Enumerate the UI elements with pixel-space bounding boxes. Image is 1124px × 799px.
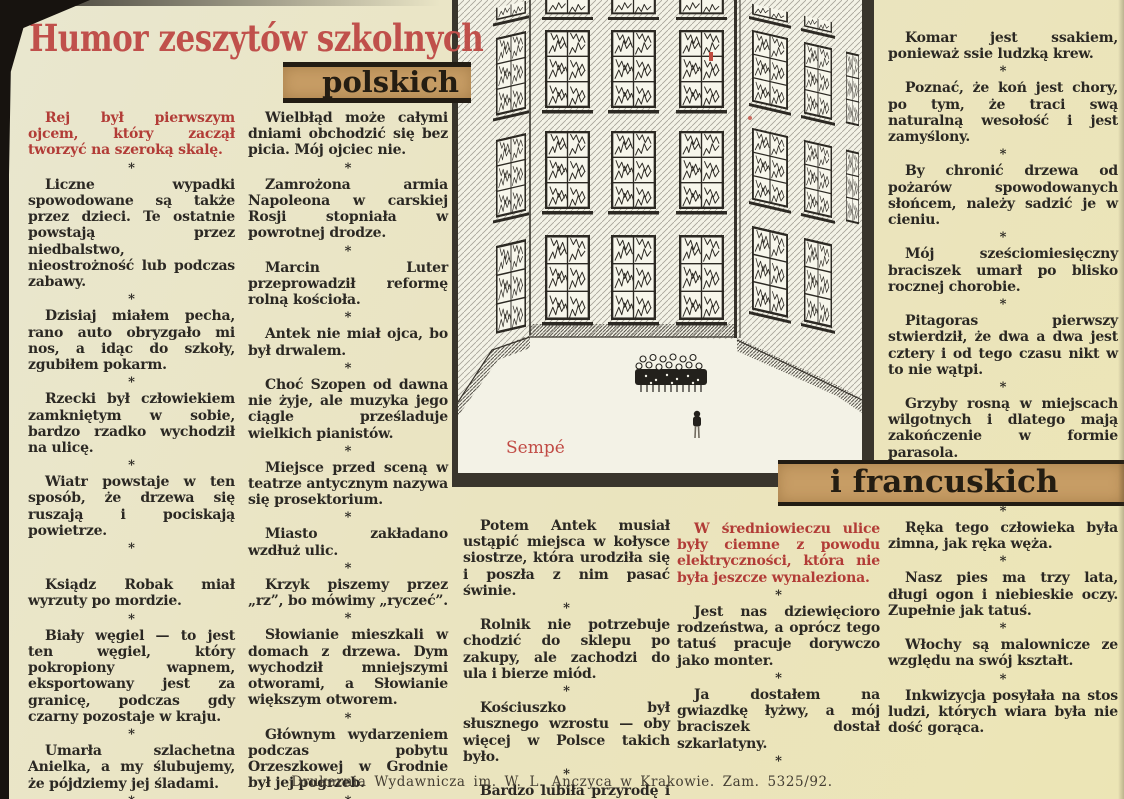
scan-edge-right bbox=[1118, 0, 1124, 799]
quote: Choć Szopen od dawna nie żyje, ale muzyk… bbox=[248, 377, 448, 442]
asterisk-separator: * bbox=[28, 795, 235, 799]
column-polish-right: Komar jest ssakiem, ponieważ ssie ludzką… bbox=[888, 30, 1118, 479]
asterisk-separator: * bbox=[888, 65, 1118, 78]
quote: Biały węgiel — to jest ten węgiel, który… bbox=[28, 628, 235, 725]
asterisk-separator: * bbox=[248, 445, 448, 458]
quote: Wielbłąd może całymi dniami obchodzić si… bbox=[248, 110, 448, 159]
asterisk-separator: * bbox=[28, 728, 235, 741]
asterisk-separator: * bbox=[888, 231, 1118, 244]
asterisk-separator: * bbox=[28, 542, 235, 555]
asterisk-separator: * bbox=[888, 673, 1118, 686]
section-banner-french: i francuskich bbox=[778, 460, 1124, 506]
quote: Marcin Luter przeprowadził reformę rolną… bbox=[248, 260, 448, 309]
asterisk-separator: * bbox=[888, 298, 1118, 311]
quote: Ręka tego człowieka była zimna, jak ręka… bbox=[888, 520, 1118, 552]
asterisk-separator: * bbox=[248, 362, 448, 375]
quote: Krzyk piszemy przez „rz”, bo mówimy „ryc… bbox=[248, 577, 448, 609]
asterisk-separator: * bbox=[677, 589, 880, 602]
quote: Antek nie miał ojca, bo był drwalem. bbox=[248, 326, 448, 358]
left-wall-windows bbox=[493, 0, 529, 333]
quote: Komar jest ssakiem, ponieważ ssie ludzką… bbox=[888, 30, 1118, 62]
scan-edge-top bbox=[0, 0, 440, 6]
asterisk-separator: * bbox=[248, 562, 448, 575]
asterisk-separator: * bbox=[888, 381, 1118, 394]
asterisk-separator: * bbox=[248, 612, 448, 625]
banner-polish-label: polskich bbox=[283, 67, 459, 97]
column-french-mid: W średniowieczu ulice były ciemne z powo… bbox=[677, 521, 880, 770]
quote: Miasto zakładano wzdłuż ulic. bbox=[248, 526, 448, 558]
asterisk-separator: * bbox=[248, 311, 448, 324]
asterisk-separator: * bbox=[463, 602, 670, 615]
quote: Grzyby rosną w miejscach wilgotnych i dl… bbox=[888, 396, 1118, 461]
quote: W średniowieczu ulice były ciemne z powo… bbox=[677, 521, 880, 586]
asterisk-separator: * bbox=[248, 712, 448, 725]
quote: Pitagoras pierwszy stwierdził, że dwa a … bbox=[888, 313, 1118, 378]
quote: Słowianie mieszkali w domach z drzewa. D… bbox=[248, 627, 448, 708]
column-french-right: *Ręka tego człowieka była zimna, jak ręk… bbox=[888, 502, 1118, 736]
quote: Wiatr powstaje w ten sposób, że drzewa s… bbox=[28, 474, 235, 539]
quote: By chronić drzewa od pożarów spowodowany… bbox=[888, 163, 1118, 228]
printer-imprint: Drukarnia Wydawnicza im. W. L. Anczyca w… bbox=[0, 774, 1124, 790]
quote: Rolnik nie potrzebuje chodzić do sklepu … bbox=[463, 617, 670, 682]
front-wall-windows bbox=[542, 0, 727, 325]
quote: Jest nas dziewięcioro rodzeństwa, a opró… bbox=[677, 604, 880, 669]
asterisk-separator: * bbox=[888, 555, 1118, 568]
asterisk-separator: * bbox=[888, 148, 1118, 161]
asterisk-separator: * bbox=[28, 293, 235, 306]
quote: Rzecki był człowiekiem zamkniętym w sobi… bbox=[28, 391, 235, 456]
artist-signature: Sempé bbox=[506, 438, 565, 458]
section-banner-polish: polskich bbox=[283, 62, 471, 103]
asterisk-separator: * bbox=[248, 162, 448, 175]
asterisk-separator: * bbox=[888, 505, 1118, 518]
quote: Liczne wypadki spowodowane są także prze… bbox=[28, 177, 235, 291]
asterisk-separator: * bbox=[248, 511, 448, 524]
asterisk-separator: * bbox=[888, 622, 1118, 635]
quote: Dzisiaj miałem pecha, rano auto obryzgał… bbox=[28, 308, 235, 373]
page-title: Humor zeszytów szkolnych bbox=[29, 17, 483, 61]
asterisk-separator: * bbox=[28, 162, 235, 175]
column-polish-left: Rej był pierwszym ojcem, który zaczął tw… bbox=[28, 110, 235, 799]
courtyard-illustration: Sempé bbox=[452, 0, 874, 487]
column-polish-mid: Wielbłąd może całymi dniami obchodzić si… bbox=[248, 110, 448, 799]
quote: Potem Antek musiał ustąpić miejsca w koł… bbox=[463, 518, 670, 599]
column-bottom-left: Potem Antek musiał ustąpić miejsca w koł… bbox=[463, 518, 670, 799]
banner-french-label: i francuskich bbox=[830, 464, 1124, 500]
magazine-page: Sempé Humor zeszytów szkolnych polskich … bbox=[0, 0, 1124, 799]
red-figure-in-window bbox=[709, 52, 713, 61]
quote: Inkwizycja posyłała na stos ludzi, który… bbox=[888, 688, 1118, 737]
quote: Włochy są malownicze ze względu na swój … bbox=[888, 637, 1118, 669]
asterisk-separator: * bbox=[248, 245, 448, 258]
asterisk-separator: * bbox=[677, 672, 880, 685]
quote: Poznać, że koń jest chory, po tym, że tr… bbox=[888, 80, 1118, 145]
asterisk-separator: * bbox=[463, 685, 670, 698]
quote: Kościuszko był słusznego wzrostu — oby w… bbox=[463, 700, 670, 765]
asterisk-separator: * bbox=[677, 755, 880, 768]
quote: Mój sześciomiesięczny braciszek umarł po… bbox=[888, 246, 1118, 295]
quote: Nasz pies ma trzy lata, długi ogon i nie… bbox=[888, 570, 1118, 619]
quote: Miejsce przed sceną w teatrze antycznym … bbox=[248, 460, 448, 509]
quote: Zamrożona armia Napoleona w carskiej Ros… bbox=[248, 177, 448, 242]
asterisk-separator: * bbox=[248, 795, 448, 799]
asterisk-separator: * bbox=[28, 376, 235, 389]
quote: Ja dostałem na gwiazdkę łyżwy, a mój bra… bbox=[677, 687, 880, 752]
quote: Rej był pierwszym ojcem, który zaczął tw… bbox=[28, 110, 235, 159]
asterisk-separator: * bbox=[28, 459, 235, 472]
quote: Ksiądz Robak miał wyrzuty po mordzie. bbox=[28, 577, 235, 609]
asterisk-separator: * bbox=[28, 613, 235, 626]
